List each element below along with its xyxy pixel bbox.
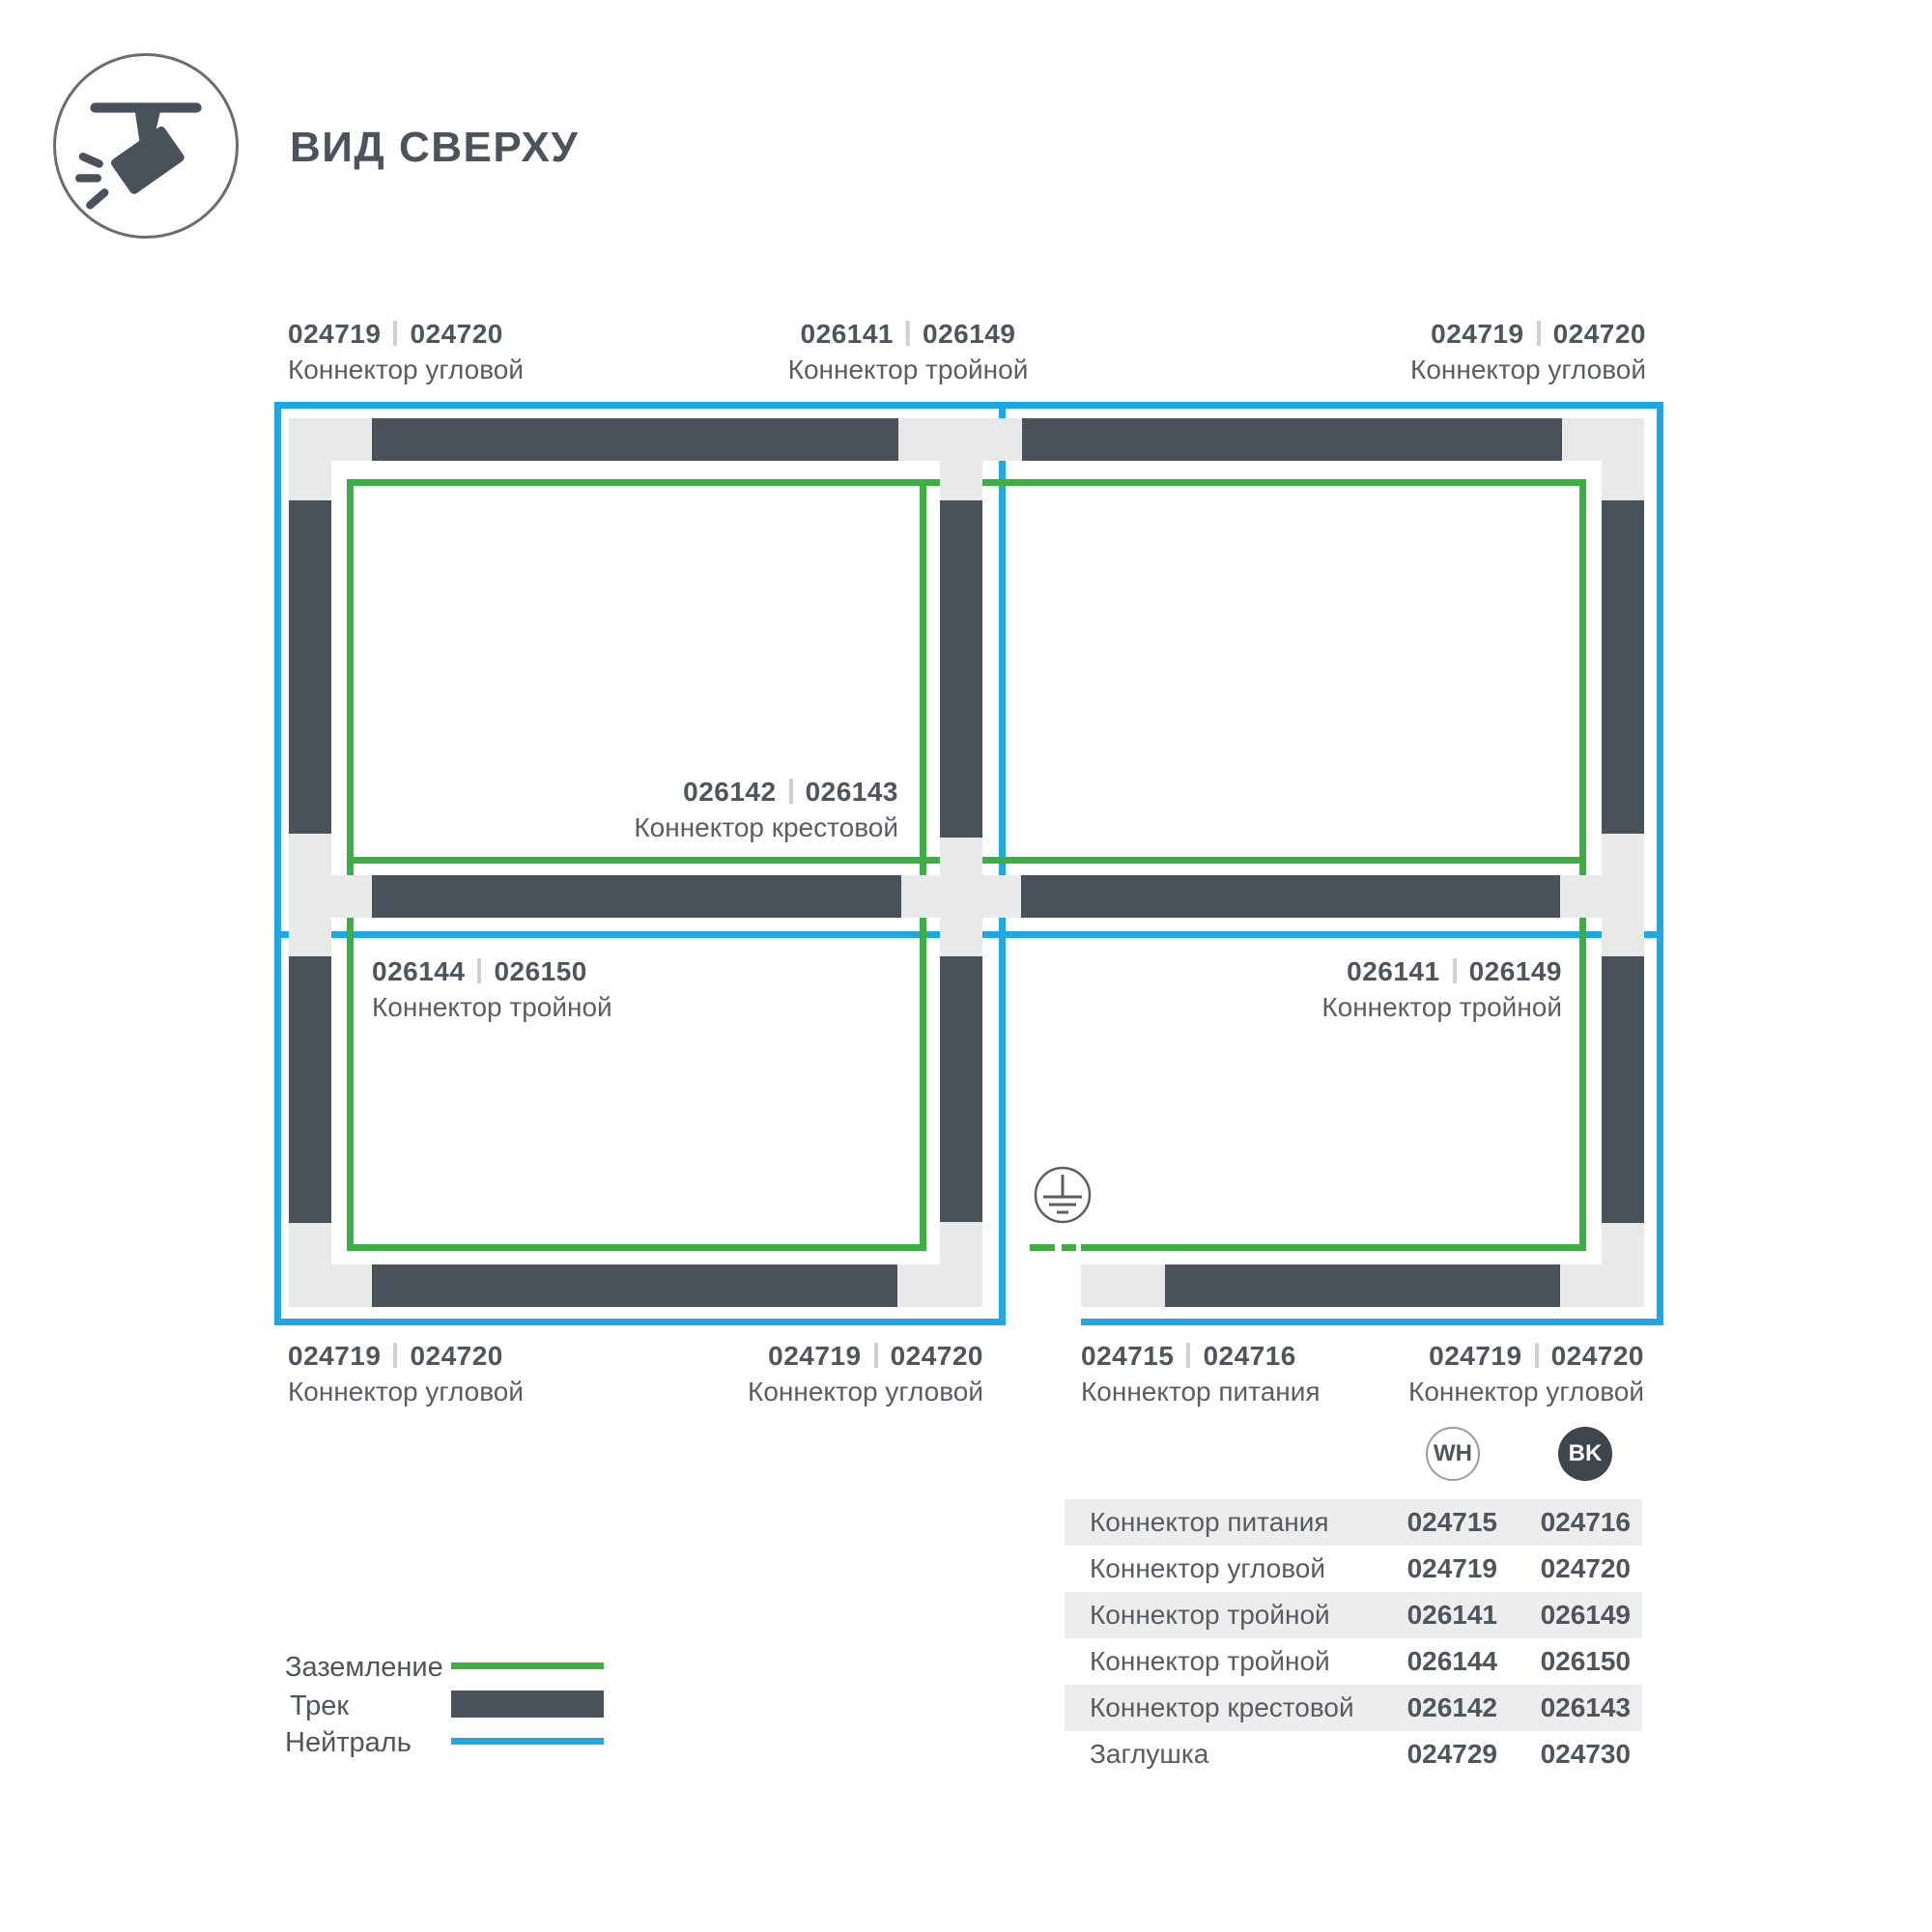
connector-block-corner: [289, 1223, 331, 1307]
part-label-cross: 026142026143 Коннектор крестовой: [634, 779, 898, 841]
label-separator: [789, 779, 793, 804]
track-spotlight-icon: [53, 53, 239, 239]
connector-block-tee: [1560, 875, 1644, 918]
legend-label-track: Трек: [290, 1690, 349, 1722]
legend-ground-line-swatch: [451, 1662, 604, 1669]
track-segment: [289, 956, 331, 1223]
neutral-line-right: [1657, 402, 1663, 1325]
track-segment: [372, 418, 898, 461]
track-segment: [1021, 875, 1560, 918]
ground-line-right: [1579, 479, 1586, 1251]
legend-label-ground: Заземление: [285, 1652, 443, 1684]
color-badge-white: WH: [1426, 1427, 1480, 1481]
track-segment: [372, 1264, 897, 1307]
ground-line-dash: [1030, 1244, 1055, 1251]
part-label-bottom-right: 024719024720 Коннектор угловой: [1408, 1343, 1644, 1406]
label-separator: [393, 321, 397, 346]
neutral-line-bottom-right: [1081, 1319, 1663, 1325]
page-title: ВИД СВЕРХУ: [290, 124, 579, 172]
legend-neutral-line-swatch: [451, 1738, 604, 1745]
ground-line-middle-vertical: [920, 479, 926, 1251]
label-separator: [1537, 321, 1541, 346]
neutral-line-top: [274, 402, 1663, 409]
connector-block-tee: [289, 875, 372, 918]
label-separator: [1186, 1343, 1190, 1368]
legend-track-bar-swatch: [451, 1690, 604, 1718]
color-badge-black: BK: [1558, 1427, 1612, 1481]
part-label-power: 024715024716 Коннектор питания: [1081, 1343, 1321, 1406]
track-segment: [289, 500, 331, 834]
label-separator: [874, 1343, 878, 1368]
table-row: Коннектор тройной 026144 026150: [1065, 1638, 1642, 1685]
part-label-mid-left: 026144026150 Коннектор тройной: [372, 958, 612, 1021]
ground-line-left: [347, 479, 354, 1251]
track-segment: [1602, 956, 1644, 1223]
table-row: Коннектор крестовой 026142 026143: [1065, 1685, 1642, 1731]
track-segment: [940, 956, 982, 1222]
neutral-line-bottom-left: [274, 1319, 1006, 1325]
label-separator: [393, 1343, 397, 1368]
track-segment: [372, 875, 901, 918]
part-label-mid-right: 026141026149 Коннектор тройной: [1321, 958, 1562, 1021]
part-label-top-right: 024719024720 Коннектор угловой: [1410, 321, 1646, 384]
label-separator: [477, 958, 481, 983]
connector-block-corner: [289, 418, 331, 500]
table-row: Коннектор угловой 024719 024720: [1065, 1546, 1642, 1592]
neutral-line-middle-vertical: [999, 402, 1006, 1325]
label-separator: [1453, 958, 1457, 983]
part-label-bottom-middle: 024719024720 Коннектор угловой: [748, 1343, 983, 1406]
page: ВИД СВЕРХУ: [0, 0, 1932, 1932]
label-separator: [906, 321, 910, 346]
neutral-line-left: [274, 402, 281, 1325]
ground-line-dash: [1062, 1244, 1076, 1251]
earth-ground-icon: [1033, 1165, 1093, 1225]
table-row: Коннектор тройной 026141 026149: [1065, 1592, 1642, 1638]
table-row: Коннектор питания 024715 024716: [1065, 1499, 1642, 1546]
track-segment: [1165, 1264, 1560, 1307]
track-segment: [1602, 500, 1644, 834]
connector-block-power: [1081, 1264, 1165, 1307]
connector-block-corner: [1602, 418, 1644, 500]
track-segment: [940, 500, 982, 838]
parts-table: WH BK Коннектор питания 024715 024716 Ко…: [1065, 1427, 1642, 1777]
ground-line-bottom-left: [347, 1244, 926, 1251]
connector-block-cross: [940, 838, 982, 956]
part-label-top-middle: 026141026149 Коннектор тройной: [788, 321, 1029, 384]
label-separator: [1535, 1343, 1539, 1368]
part-label-bottom-left: 024719024720 Коннектор угловой: [288, 1343, 524, 1406]
track-segment: [1022, 418, 1562, 461]
connector-block-corner: [940, 1222, 982, 1307]
table-row: Заглушка 024729 024730: [1065, 1731, 1642, 1777]
parts-table-header: WH BK: [1065, 1427, 1642, 1481]
connector-block-tee: [940, 418, 982, 500]
ground-line-bottom-right: [1081, 1244, 1586, 1251]
connector-block-corner: [1602, 1223, 1644, 1307]
part-label-top-left: 024719024720 Коннектор угловой: [288, 321, 524, 384]
legend-label-neutral: Нейтраль: [285, 1727, 412, 1759]
